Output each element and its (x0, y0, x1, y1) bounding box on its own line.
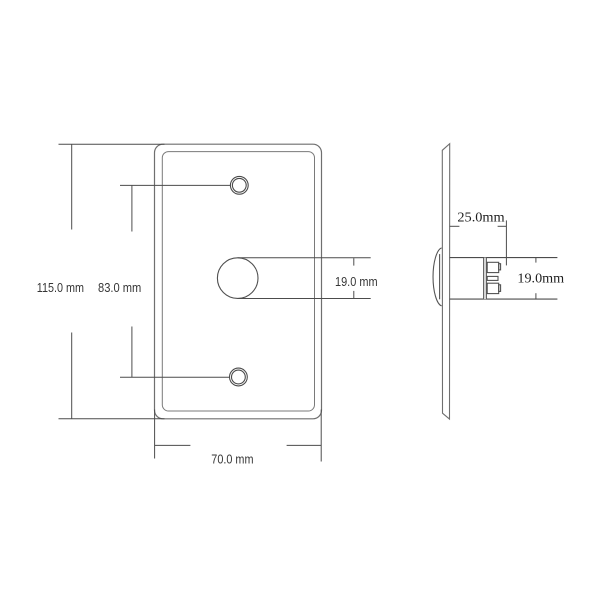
svg-text:19.0mm: 19.0mm (517, 271, 564, 286)
svg-text:19.0 mm: 19.0 mm (335, 275, 378, 289)
svg-text:115.0 mm: 115.0 mm (37, 281, 84, 295)
svg-text:83.0 mm: 83.0 mm (98, 281, 141, 295)
svg-text:70.0 mm: 70.0 mm (211, 452, 253, 466)
svg-text:25.0mm: 25.0mm (457, 210, 505, 225)
